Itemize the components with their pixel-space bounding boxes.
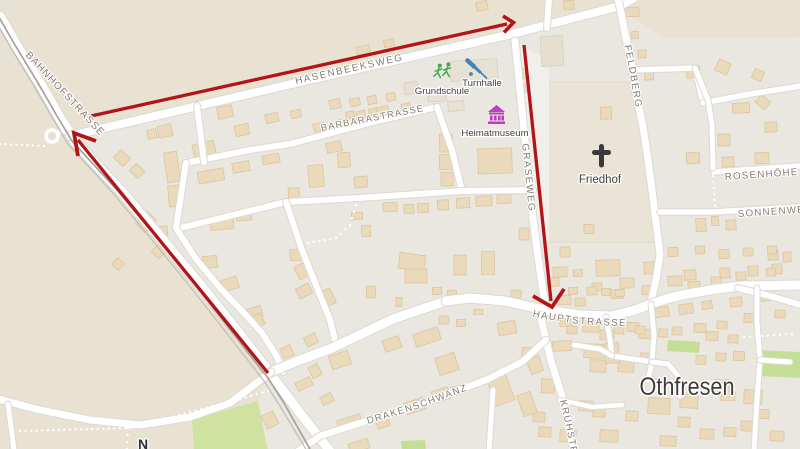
svg-text:Friedhof: Friedhof: [579, 174, 622, 186]
svg-text:Turnhalle: Turnhalle: [462, 78, 502, 89]
svg-text:Othfresen: Othfresen: [640, 373, 735, 401]
svg-text:Grundschule: Grundschule: [415, 86, 469, 97]
svg-text:Heimatmuseum: Heimatmuseum: [461, 128, 528, 139]
svg-text:N: N: [138, 436, 148, 449]
